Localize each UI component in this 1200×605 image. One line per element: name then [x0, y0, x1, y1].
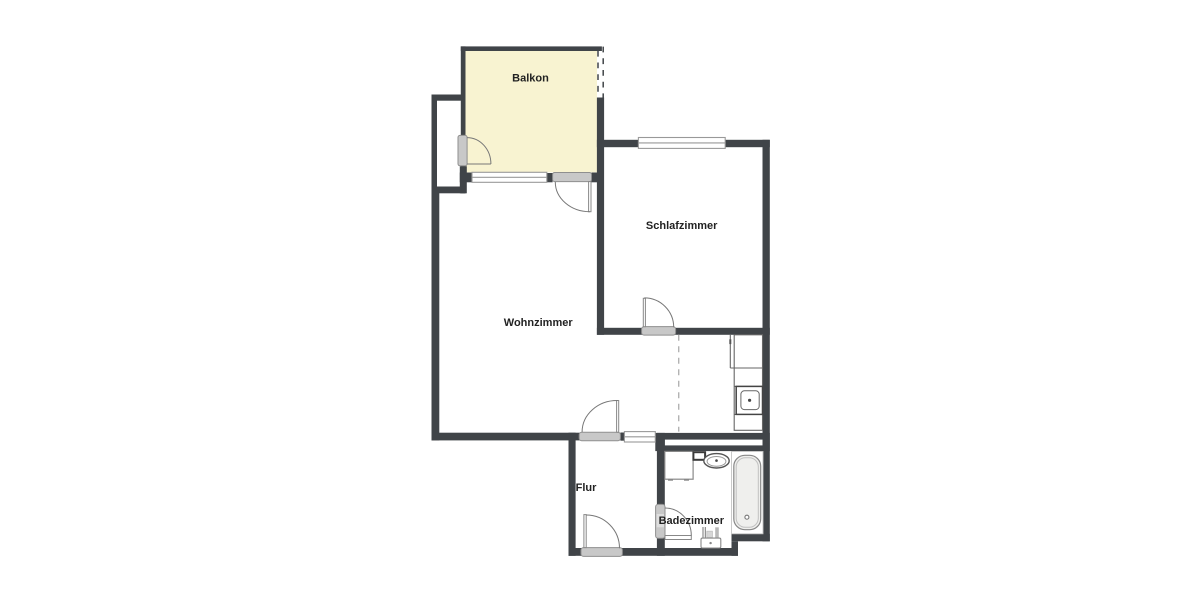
svg-text:Balkon: Balkon [512, 73, 549, 85]
svg-text:Schlafzimmer: Schlafzimmer [646, 220, 718, 232]
svg-text:Flur: Flur [576, 482, 597, 494]
svg-text:Wohnzimmer: Wohnzimmer [504, 317, 574, 329]
svg-text:Badezimmer: Badezimmer [659, 515, 725, 527]
